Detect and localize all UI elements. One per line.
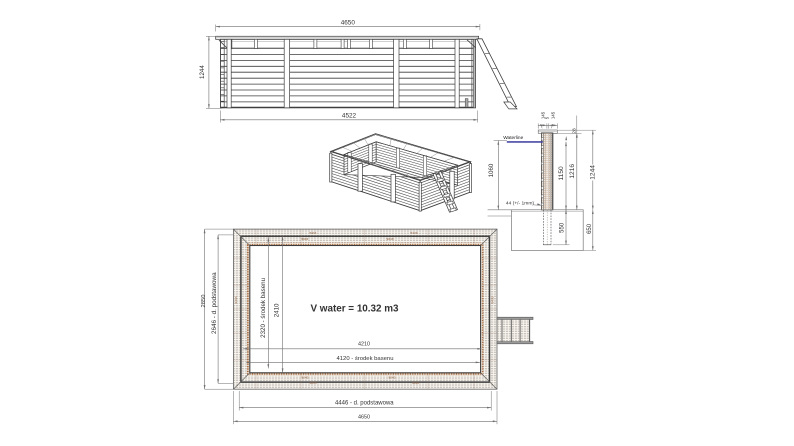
svg-text:9043: 9043	[301, 237, 308, 241]
svg-text:Waterline: Waterline	[503, 135, 523, 141]
svg-text:4120 - środek basenu: 4120 - środek basenu	[337, 356, 394, 362]
svg-text:2646 - d. podstawowa: 2646 - d. podstawowa	[211, 272, 218, 334]
svg-text:4446 - d. podstawowa: 4446 - d. podstawowa	[335, 401, 394, 407]
svg-text:4522: 4522	[342, 113, 357, 120]
svg-text:9043: 9043	[389, 376, 396, 380]
svg-text:145: 145	[550, 111, 555, 119]
svg-text:1244: 1244	[589, 165, 596, 180]
svg-text:5433: 5433	[309, 231, 316, 235]
svg-text:5433: 5433	[234, 296, 238, 303]
svg-text:5433: 5433	[411, 231, 418, 235]
svg-text:1150: 1150	[558, 166, 565, 181]
svg-text:4650: 4650	[341, 19, 356, 26]
svg-text:5433: 5433	[491, 296, 495, 303]
svg-text:1060: 1060	[488, 163, 495, 177]
svg-text:4210: 4210	[358, 342, 370, 348]
svg-text:1216: 1216	[569, 164, 576, 179]
svg-text:650: 650	[587, 223, 593, 234]
svg-text:V water = 10.32 m3: V water = 10.32 m3	[310, 304, 399, 315]
svg-text:44 (+/- 1mm): 44 (+/- 1mm)	[506, 200, 534, 206]
svg-text:4016: 4016	[412, 381, 419, 385]
svg-text:9043: 9043	[387, 237, 394, 241]
svg-text:1244: 1244	[199, 65, 206, 79]
svg-text:2410: 2410	[273, 303, 280, 317]
svg-text:28: 28	[571, 128, 577, 134]
svg-text:9043: 9043	[302, 376, 309, 380]
svg-text:4650: 4650	[358, 414, 370, 420]
svg-text:2320 - środek basenu: 2320 - środek basenu	[260, 277, 267, 337]
svg-text:2035: 2035	[310, 381, 317, 385]
svg-text:2850: 2850	[201, 295, 207, 308]
svg-text:550: 550	[560, 222, 566, 233]
